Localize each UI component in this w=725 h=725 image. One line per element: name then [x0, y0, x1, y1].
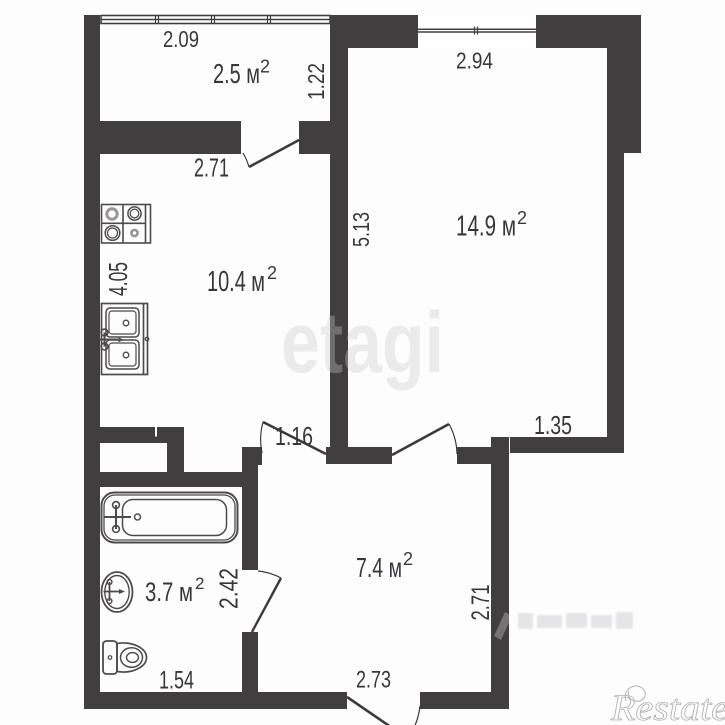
- svg-text:5.13: 5.13: [348, 212, 374, 247]
- svg-text:2.94: 2.94: [456, 48, 493, 74]
- svg-text:1.16: 1.16: [275, 423, 313, 451]
- svg-text:4.05: 4.05: [105, 262, 133, 296]
- svg-text:3.7 м: 3.7 м: [145, 577, 193, 607]
- svg-text:2: 2: [267, 263, 277, 283]
- svg-text:Restate: Restate: [610, 688, 725, 725]
- svg-text:2: 2: [260, 57, 270, 77]
- svg-text:2: 2: [517, 208, 527, 228]
- svg-text:7.4 м: 7.4 м: [356, 552, 402, 583]
- svg-text:14.9 м: 14.9 м: [456, 211, 516, 243]
- svg-text:1.54: 1.54: [159, 667, 194, 695]
- svg-text:1.22: 1.22: [303, 63, 329, 100]
- svg-text:2.73: 2.73: [356, 667, 391, 694]
- svg-text:2.5 м: 2.5 м: [213, 58, 260, 89]
- svg-text:2: 2: [195, 574, 204, 593]
- svg-text:2.71: 2.71: [467, 585, 495, 621]
- svg-text:1.35: 1.35: [534, 410, 572, 440]
- svg-text:2.71: 2.71: [194, 155, 229, 183]
- svg-text:2.09: 2.09: [163, 26, 199, 52]
- svg-text:etagi: etagi: [281, 295, 444, 391]
- svg-text:2.42: 2.42: [216, 568, 244, 609]
- svg-text:2: 2: [403, 549, 413, 569]
- svg-text:10.4 м: 10.4 м: [207, 266, 265, 298]
